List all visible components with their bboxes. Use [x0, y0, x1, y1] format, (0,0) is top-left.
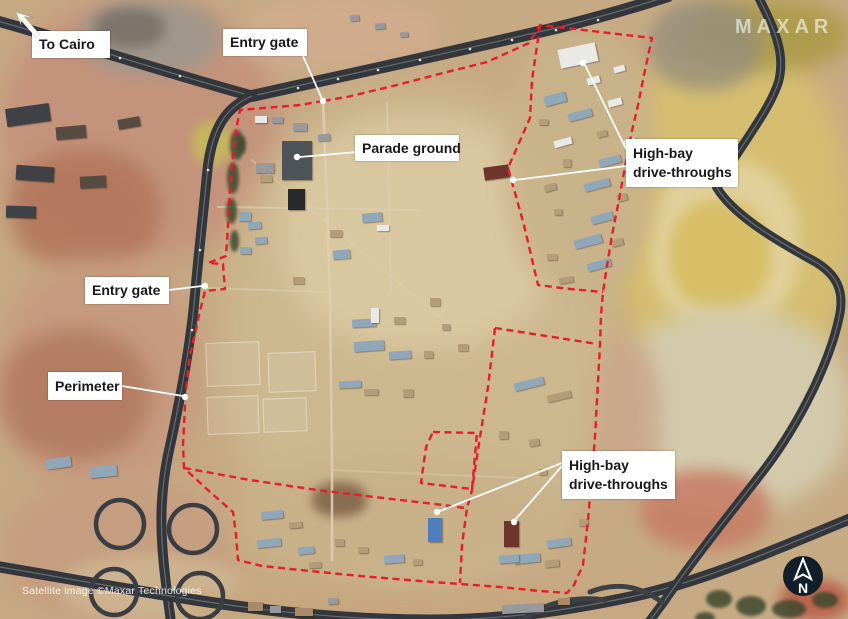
to-cairo-arrow-icon — [6, 4, 50, 48]
perimeter-outline — [183, 25, 652, 593]
north-letter: N — [798, 580, 808, 596]
leader-line — [515, 166, 626, 180]
label-entry-gate-left: Entry gate — [85, 277, 169, 304]
satellite-image: To Cairo Entry gate Parade ground High-b… — [0, 0, 848, 619]
east-area-top-divider — [495, 328, 597, 344]
leader-dot — [434, 509, 440, 515]
leader-line — [303, 56, 322, 99]
label-text: Parade ground — [362, 139, 452, 158]
leader-dot — [510, 177, 516, 183]
leader-dot — [511, 519, 517, 525]
label-high-bay-drive-throughs-bottom: High-bay drive-throughs — [562, 451, 675, 499]
leader-dot — [182, 394, 188, 400]
annotation-overlay — [0, 0, 848, 619]
label-perimeter: Perimeter — [48, 372, 122, 400]
leader-dot — [580, 60, 586, 66]
leader-dot — [320, 98, 326, 104]
leader-line — [585, 65, 626, 149]
leader-dot — [294, 154, 300, 160]
leader-line — [122, 386, 183, 396]
label-parade-ground: Parade ground — [355, 135, 459, 161]
leader-line — [515, 466, 562, 520]
leader-line — [300, 152, 357, 157]
image-credit: Satellite image ©Maxar Technologies — [22, 585, 202, 597]
label-text: High-bay — [633, 144, 731, 163]
label-entry-gate-top: Entry gate — [223, 29, 307, 56]
label-text: Entry gate — [230, 33, 300, 52]
label-text: drive-throughs — [569, 475, 668, 494]
leader-dot — [202, 283, 208, 289]
label-text: Perimeter — [55, 377, 115, 396]
mid-compound-divider — [184, 468, 465, 508]
small-square-outline — [421, 432, 477, 489]
label-high-bay-drive-throughs-top: High-bay drive-throughs — [626, 139, 738, 187]
label-text: Entry gate — [92, 281, 162, 300]
leader-line — [169, 286, 202, 290]
ne-area-divider — [508, 25, 603, 292]
label-text: drive-throughs — [633, 163, 731, 182]
label-text: High-bay — [569, 456, 668, 475]
leader-lines — [122, 56, 626, 525]
north-arrow-icon: N — [779, 552, 827, 600]
maxar-watermark: MAXAR — [735, 16, 833, 39]
east-area-left-divider — [460, 328, 495, 583]
